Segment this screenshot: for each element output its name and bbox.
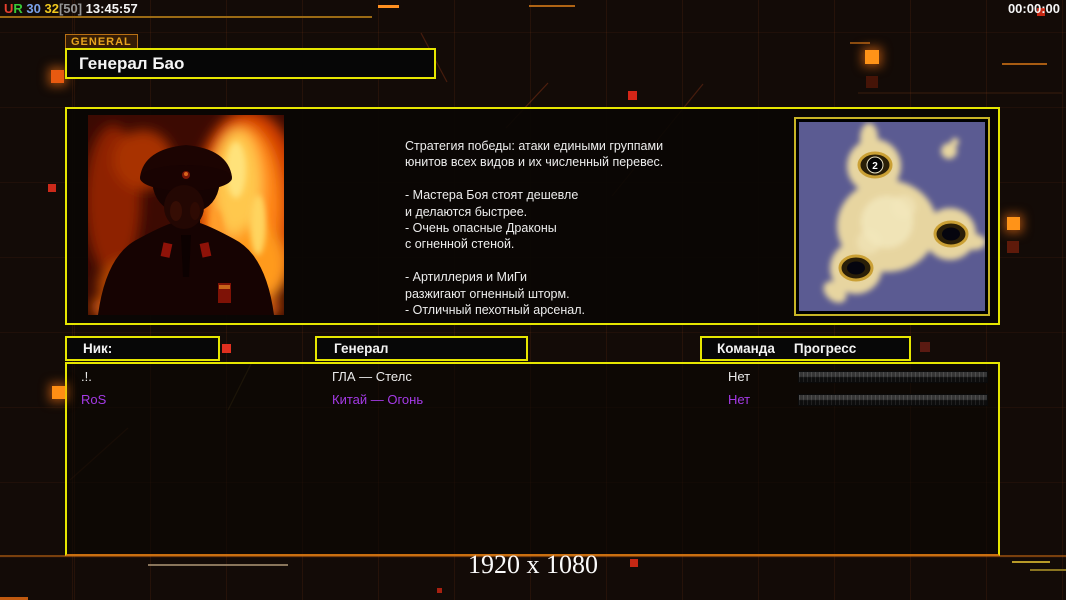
map-preview: 2 [794,117,990,316]
decor-square [222,344,231,353]
resolution-label: 1920 x 1080 [0,550,1066,580]
status-segment: 13:45:57 [82,1,138,16]
decor-square [920,342,930,352]
status-segment: R [13,1,22,16]
decor-square [1007,241,1019,253]
column-header-nick: Ник: [65,336,220,361]
player-general: Китай — Огонь [332,392,423,407]
player-general: ГЛА — Стелс [332,369,412,384]
status-bar: UR 30 32[50] 13:45:57 [4,1,138,16]
match-timer: 00:00:00 [1008,1,1060,16]
decor-square [1007,217,1020,230]
status-segment: 32 [44,1,58,16]
player-team: Нет [728,392,750,407]
column-header-team: Команда [717,341,775,356]
decor-line [850,42,870,44]
player-list-panel: .!. ГЛА — Стелс Нет RoS Китай — Огонь Не… [65,362,1000,556]
decor-line [1002,63,1047,65]
decor-line [378,5,399,8]
game-lobby-screen: UR 30 32[50] 13:45:57 00:00:00 GENERAL Г… [0,0,1066,600]
column-header-general: Генерал [315,336,528,361]
player-nick: .!. [81,369,92,384]
decor-square [51,70,64,83]
column-header-progress: Прогресс [794,338,856,359]
decor-line [0,16,372,18]
player-nick: RoS [81,392,106,407]
column-header-team-progress: КомандаПрогресс [700,336,911,361]
general-strategy-description: Стратегия победы: атаки едиными группами… [405,138,715,318]
status-segment: [50] [59,1,82,16]
player-progress-bar [798,371,988,383]
general-info-panel: Стратегия победы: атаки едиными группами… [65,107,1000,325]
decor-square [866,76,878,88]
general-name-title: Генерал Бао [65,48,436,79]
decor-square [48,184,56,192]
status-segment: U [4,1,13,16]
decor-square [628,91,637,100]
decor-line [529,5,575,7]
start-position-marker-label: 2 [872,161,878,172]
player-team: Нет [728,369,750,384]
status-segment: 30 [23,1,45,16]
start-position-marker [935,222,967,246]
general-portrait [88,115,284,315]
decor-square [52,386,65,399]
start-position-marker [840,256,872,280]
player-progress-bar [798,394,988,406]
player-row[interactable]: .!. ГЛА — Стелс Нет [67,367,998,389]
decor-square [437,588,442,593]
player-row[interactable]: RoS Китай — Огонь Нет [67,390,998,412]
decor-square [865,50,879,64]
start-position-marker-2: 2 [859,153,891,177]
